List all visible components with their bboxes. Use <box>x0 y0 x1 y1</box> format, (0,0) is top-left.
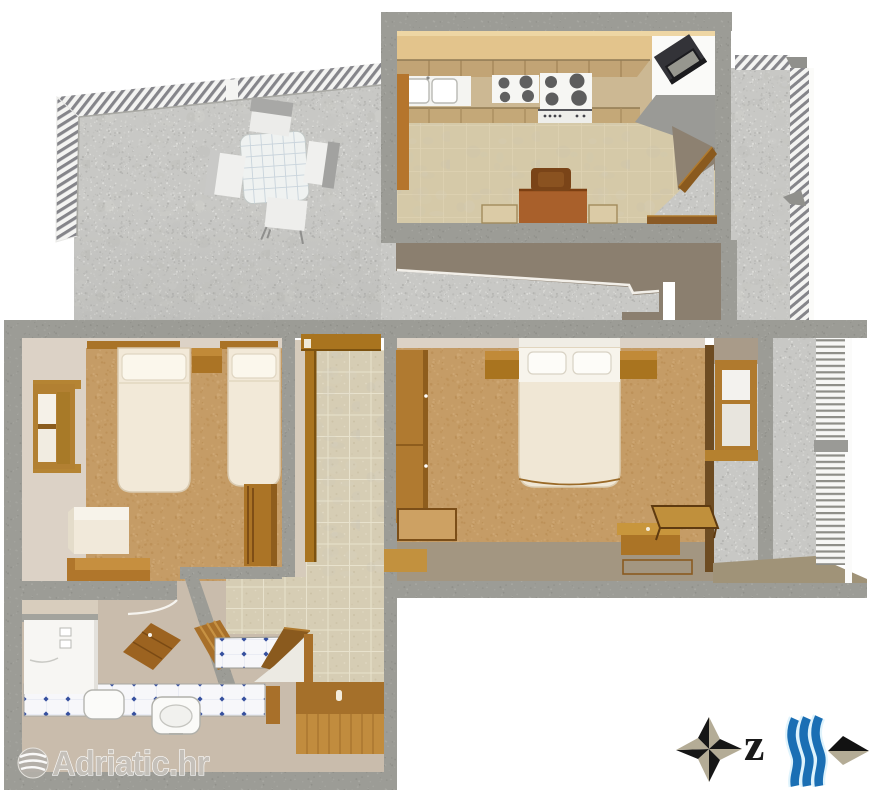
svg-text:z: z <box>744 719 764 770</box>
svg-text:Adriatic.hr: Adriatic.hr <box>52 745 209 783</box>
